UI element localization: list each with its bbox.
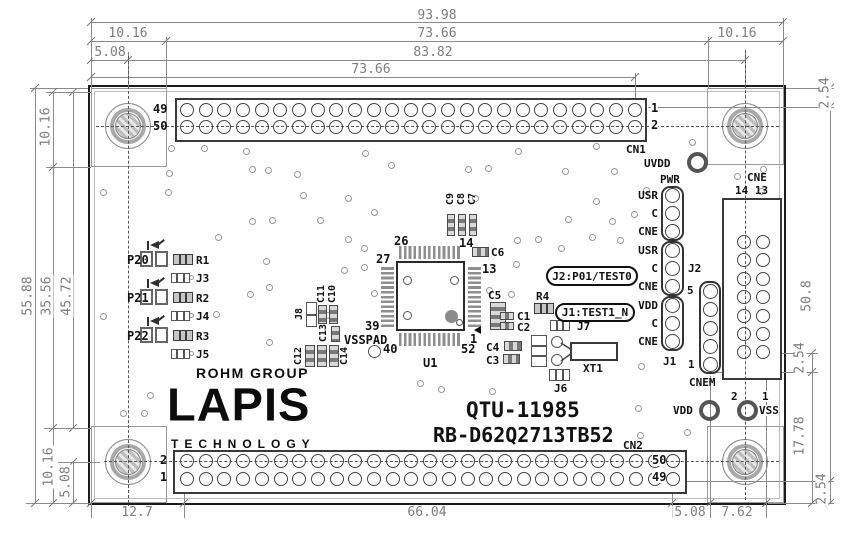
pin-hole: [461, 454, 475, 468]
c6-label: C6: [491, 247, 504, 258]
pin-hole: [423, 472, 437, 486]
pwr-pin-c1: C: [618, 208, 658, 219]
board-model-number: RB-D62Q2713TB52: [433, 425, 614, 445]
pin-hole: [461, 472, 475, 486]
pin-hole: [329, 120, 343, 134]
dimension-line: [91, 503, 92, 518]
p22-label: P22: [127, 330, 149, 342]
c5-label: C5: [488, 290, 501, 301]
cnem-label: CNEM: [689, 377, 716, 388]
load-cap-footprint: [531, 335, 547, 367]
pwr-pin-c3: C: [618, 318, 658, 329]
dim-cn1-pin1-span: 73.66: [349, 63, 392, 76]
dimension-line: [708, 37, 709, 88]
cn2-pin50-label: 50: [652, 454, 666, 466]
pin-hole: [404, 103, 418, 117]
pin-hole: [498, 454, 512, 468]
dim-left-bottom-offset: 5.08: [60, 464, 73, 499]
pin-hole: [460, 103, 474, 117]
pin-hole: [180, 120, 194, 134]
pin-hole: [329, 103, 343, 117]
c7-label: C7: [468, 193, 478, 205]
pin-hole: [534, 120, 548, 134]
pin-hole: [274, 472, 288, 486]
cn1-pin1-label: 1: [651, 102, 658, 114]
pin-hole: [737, 309, 751, 323]
cn2-label: CN2: [623, 440, 643, 451]
c4-cap: [504, 341, 522, 351]
pin-hole: [554, 454, 568, 468]
c13-cap: [331, 326, 340, 342]
pin-hole: [386, 472, 400, 486]
pin-hole: [703, 302, 718, 317]
connector-cne: [722, 198, 782, 380]
j4-label: J4: [196, 311, 209, 322]
dim-right-lower: 17.78: [794, 414, 807, 457]
vss-pad-number: 1: [762, 391, 769, 402]
pin-hole: [255, 120, 269, 134]
vss-pad: [737, 400, 758, 421]
chip-fiducial-tr: [450, 276, 459, 285]
pin-hole: [255, 472, 269, 486]
cn1-pin50-label: 50: [153, 120, 167, 132]
vdd-pad: [699, 400, 720, 421]
cn2-pin2-label: 2: [160, 454, 167, 466]
cn1-pin49-label: 49: [153, 103, 167, 115]
vdd-label: VDD: [673, 405, 693, 416]
vdd-pad-number: 2: [731, 391, 738, 402]
pin-hole: [756, 272, 770, 286]
dim-top-span: 73.66: [415, 27, 458, 40]
dim-top-right-margin: 10.16: [715, 27, 758, 40]
c1-cap: [500, 312, 514, 320]
pwr-pin-usr2: USR: [618, 245, 658, 256]
pin-hole: [609, 103, 623, 117]
pin-hole: [348, 103, 362, 117]
cnem-pin5-label: 5: [687, 285, 694, 296]
chip-pin52: 52: [461, 343, 475, 355]
chip-pin13: 13: [482, 263, 496, 275]
board-part-number: QTU-11985: [466, 400, 580, 421]
pin-hole: [236, 120, 250, 134]
j5-footprint: [171, 349, 190, 359]
pin-hole: [311, 103, 325, 117]
pin-hole: [554, 472, 568, 486]
chip-pins-bottom: [399, 333, 462, 346]
pin-hole: [199, 454, 213, 468]
dim-left-bottom: 10.16: [43, 445, 56, 488]
pin-hole: [273, 103, 287, 117]
dim-left-top: 10.16: [40, 105, 53, 148]
pwr-pin-usr1: USR: [618, 190, 658, 201]
pin-hole: [292, 103, 306, 117]
pin-hole: [441, 120, 455, 134]
pwr-pin-cne3: CNE: [618, 336, 658, 347]
xt1-leads-icon: [560, 338, 574, 366]
dim-top-left-margin: 10.16: [106, 27, 149, 40]
xt1-label: XT1: [583, 363, 603, 374]
dimension-line: [166, 37, 167, 88]
r3-label: R3: [196, 331, 209, 342]
pin-hole: [404, 120, 418, 134]
pin-hole: [330, 454, 344, 468]
r4-label: R4: [536, 291, 549, 302]
pin-hole: [703, 357, 718, 372]
pin-hole: [199, 120, 213, 134]
dim-bottom-right-a: 5.08: [672, 506, 707, 519]
pin-hole: [422, 103, 436, 117]
c4-label: C4: [486, 342, 499, 353]
chip-fiducial-bl: [403, 311, 412, 320]
pcb-dimension-drawing: 49 50 1 2 CN1 2 1 50 49 CN2 CNE 14 13 PW…: [0, 0, 850, 539]
pin-hole: [330, 472, 344, 486]
cn1-pin2-label: 2: [651, 119, 658, 131]
pin-hole: [573, 454, 587, 468]
uvdd-pad: [687, 152, 708, 173]
pin-hole: [590, 120, 604, 134]
pin-hole: [478, 103, 492, 117]
j3-footprint: [171, 273, 190, 283]
led-diode-icon: [146, 316, 165, 327]
pin-hole: [665, 206, 680, 221]
dim-bottom-right-b: 7.62: [719, 506, 754, 519]
pin-hole: [498, 472, 512, 486]
pin-hole: [703, 284, 718, 299]
pin-hole: [590, 103, 604, 117]
pin-hole: [665, 224, 680, 239]
pin-hole: [610, 472, 624, 486]
c6-cap: [472, 247, 489, 257]
pin-hole: [442, 454, 456, 468]
chip-fiducial-tl: [403, 276, 412, 285]
pin-hole: [478, 120, 492, 134]
p21-label: P21: [127, 292, 149, 304]
dimension-line: [30, 88, 88, 89]
r2-footprint: [173, 292, 193, 303]
pin-hole: [311, 454, 325, 468]
chip-pins-top: [399, 246, 462, 259]
dim-board-height: 55.88: [22, 274, 35, 317]
chip-pin14: 14: [459, 237, 473, 249]
pwr-pin-vdd: VDD: [618, 300, 658, 311]
pin-hole: [385, 103, 399, 117]
c10-cap: [329, 305, 338, 324]
chip-pin39: 39: [365, 320, 379, 332]
c14-cap: [329, 345, 339, 367]
j7-label: J7: [577, 321, 590, 332]
pin-hole: [460, 120, 474, 134]
cne-column-numbers: 14 13: [735, 185, 768, 196]
j1-label: J1: [663, 356, 676, 367]
dim-right-mid: 2.54: [794, 340, 807, 375]
r4-footprint: [534, 303, 554, 314]
pin-hole: [665, 316, 680, 331]
uvdd-label: UVDD: [644, 158, 671, 169]
c11-cap: [318, 305, 327, 324]
pin-hole: [367, 472, 381, 486]
pin-hole: [236, 472, 250, 486]
dim-hole-spacing: 83.82: [411, 46, 454, 59]
pin-hole: [737, 327, 751, 341]
dim-cn2-span: 66.04: [405, 506, 448, 519]
pin-hole: [629, 454, 643, 468]
r1-footprint: [173, 254, 193, 265]
p20-label: P20: [127, 254, 149, 266]
pin-hole: [737, 272, 751, 286]
pin-hole: [553, 120, 567, 134]
pin-hole: [737, 235, 751, 249]
pin-hole: [273, 120, 287, 134]
c2-cap: [500, 322, 514, 330]
dimension-line: [91, 60, 745, 61]
pin-hole: [628, 103, 642, 117]
vss-label: VSS: [759, 405, 779, 416]
dim-bottom-left: 12.7: [119, 506, 154, 519]
dim-right-bottom: 2.54: [816, 471, 829, 506]
pin-hole: [497, 120, 511, 134]
c12-label: C12: [294, 347, 304, 365]
lapis-logo: LAPIS: [167, 381, 310, 427]
dimension-line: [710, 376, 711, 518]
pin-hole: [348, 120, 362, 134]
c14-label: C14: [340, 347, 350, 365]
r1-label: R1: [196, 255, 209, 266]
pin-hole: [367, 103, 381, 117]
pwr-label: PWR: [660, 174, 680, 185]
pin-hole: [703, 321, 718, 336]
cn1-label: CN1: [626, 144, 646, 155]
pin-hole: [292, 120, 306, 134]
j8-label: J8: [295, 308, 305, 320]
pin-hole: [517, 454, 531, 468]
chip-pin1-dot: [445, 310, 458, 323]
pin-hole: [180, 103, 194, 117]
pin-hole: [756, 327, 770, 341]
pin-hole: [217, 103, 231, 117]
dimension-line: [73, 92, 74, 428]
pin-hole: [628, 120, 642, 134]
dim-right-span: 50.8: [801, 278, 814, 313]
pin-hole: [497, 103, 511, 117]
pin-hole: [441, 103, 455, 117]
dim-top-offset: 5.08: [92, 46, 127, 59]
c2-label: C2: [517, 322, 530, 333]
pin-hole: [573, 472, 587, 486]
j5-label: J5: [196, 349, 209, 360]
lapis-technology-text: TECHNOLOGY: [171, 438, 316, 450]
c3-label: C3: [486, 355, 499, 366]
pin-hole: [517, 472, 531, 486]
dimension-line: [58, 462, 100, 463]
pwr-pin-cne1: CNE: [618, 226, 658, 237]
dim-left-mid: 35.56: [41, 274, 54, 317]
j2-label: J2: [688, 263, 701, 274]
c8-label: C8: [457, 193, 467, 205]
c9-label: C9: [446, 193, 456, 205]
pin-hole: [180, 472, 194, 486]
j6-footprint: [549, 369, 570, 381]
pin-hole: [572, 120, 586, 134]
cnem-pin1-label: 1: [688, 359, 695, 370]
chip-refdes: U1: [423, 357, 437, 369]
pin-hole: [572, 103, 586, 117]
pin-hole: [516, 120, 530, 134]
c13-cap2: [317, 345, 327, 367]
cn2-pin49-label: 49: [652, 471, 666, 483]
dimension-line: [830, 88, 831, 503]
pin-hole: [422, 120, 436, 134]
pin-hole: [423, 454, 437, 468]
pin-hole: [553, 103, 567, 117]
pin-hole: [255, 454, 269, 468]
j8-footprint: [306, 302, 317, 327]
j6-label: J6: [554, 383, 567, 394]
pin-hole: [311, 472, 325, 486]
j4-footprint: [171, 311, 190, 321]
vsspad-label: VSSPAD: [344, 334, 387, 346]
cn2-pin1-label: 1: [160, 471, 167, 483]
pin-hole: [629, 472, 643, 486]
chip-pin27: 27: [376, 253, 390, 265]
led-diode-icon: [146, 278, 165, 289]
dimension-line: [812, 353, 813, 503]
pin-hole: [665, 188, 680, 203]
c11-label: C11: [317, 285, 327, 303]
led-diode-icon: [146, 240, 165, 251]
pwr-pin-c2: C: [618, 263, 658, 274]
c10-label: C10: [328, 285, 338, 303]
cne-label: CNE: [747, 172, 767, 183]
c12-cap: [305, 345, 315, 367]
pin-hole: [236, 454, 250, 468]
pin-hole: [236, 103, 250, 117]
pin-hole: [386, 454, 400, 468]
dimension-line: [91, 41, 783, 42]
pin-hole: [311, 120, 325, 134]
dimension-line: [766, 357, 767, 518]
c3-cap: [503, 354, 520, 364]
pin-hole: [367, 454, 381, 468]
pin-hole: [199, 103, 213, 117]
pin-hole: [516, 103, 530, 117]
xt1-body: [570, 342, 618, 361]
j3-label: J3: [196, 273, 209, 284]
dimension-line: [783, 18, 784, 88]
c9-cap: [447, 214, 455, 236]
pin-hole: [534, 103, 548, 117]
c13-label: C13: [319, 324, 329, 342]
chip-pin26: 26: [394, 235, 408, 247]
r3-footprint: [173, 330, 193, 341]
pin-hole: [274, 454, 288, 468]
pin-hole: [665, 334, 680, 349]
c8-cap: [458, 214, 466, 236]
dimension-line: [26, 503, 91, 504]
pin-hole: [385, 120, 399, 134]
pin-hole: [756, 235, 770, 249]
dim-left-span: 45.72: [61, 274, 74, 317]
pin-hole: [703, 339, 718, 354]
centerline: [128, 56, 129, 508]
pin-hole: [756, 309, 770, 323]
pin-hole: [367, 120, 381, 134]
pin-hole: [665, 279, 680, 294]
dim-overall-width: 93.98: [415, 9, 458, 22]
pin-hole: [255, 103, 269, 117]
pin-hole: [217, 120, 231, 134]
pin-hole: [610, 454, 624, 468]
pwr-pin-cne2: CNE: [618, 281, 658, 292]
pin-hole: [665, 298, 680, 313]
pin-hole: [665, 261, 680, 276]
c7-cap: [469, 214, 477, 236]
chip-pins-left: [381, 265, 394, 327]
dim-right-top: 2.54: [819, 75, 832, 110]
pin-hole: [199, 472, 213, 486]
chip-fiducial-br: [456, 319, 463, 326]
chip-pins-right: [468, 265, 481, 327]
dimension-line: [91, 77, 635, 78]
pin-hole: [665, 243, 680, 258]
pin-hole: [609, 120, 623, 134]
pin-hole: [442, 472, 456, 486]
r2-label: R2: [196, 293, 209, 304]
pin-hole: [180, 454, 194, 468]
